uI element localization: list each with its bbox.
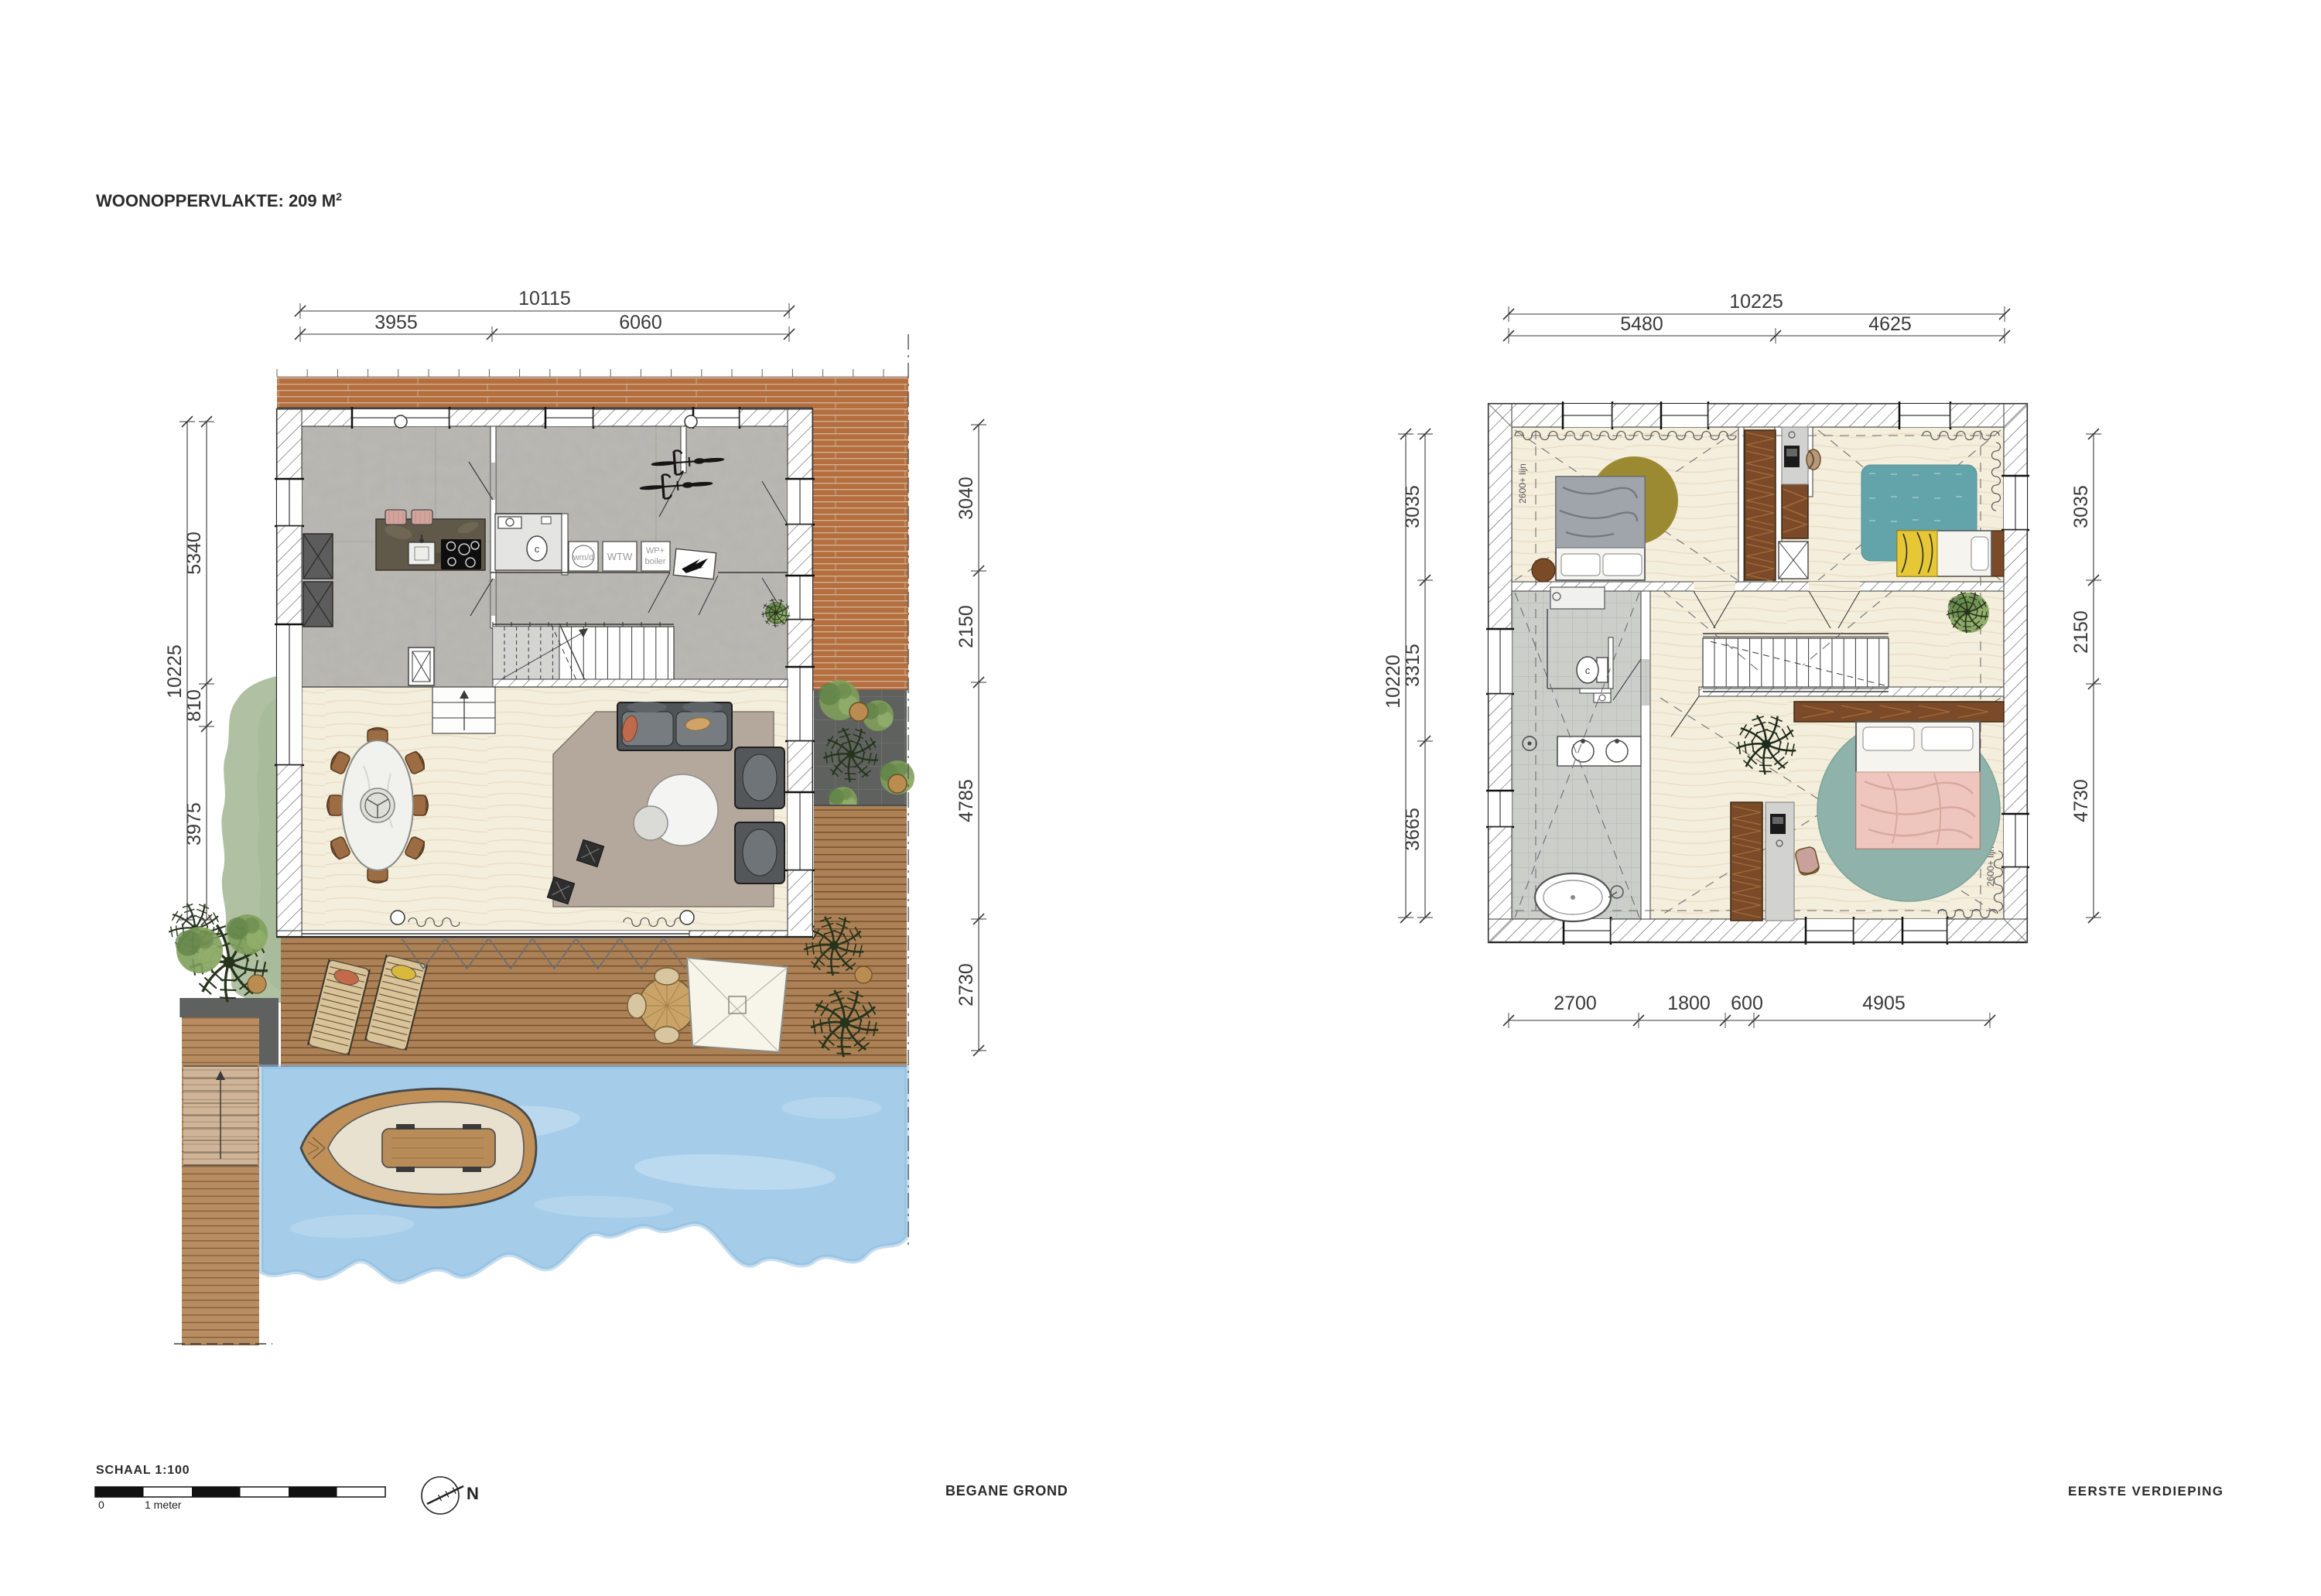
svg-text:BEGANE GROND: BEGANE GROND: [945, 1483, 1068, 1499]
svg-text:10115: 10115: [518, 288, 571, 309]
svg-text:N: N: [467, 1484, 479, 1503]
svg-text:810: 810: [183, 689, 205, 722]
svg-text:2600+ lijn: 2600+ lijn: [1517, 463, 1528, 504]
svg-text:2700: 2700: [1554, 993, 1597, 1014]
svg-text:boiler: boiler: [645, 557, 666, 566]
svg-text:4905: 4905: [1862, 993, 1906, 1014]
svg-text:SCHAAL 1:100: SCHAAL 1:100: [96, 1464, 190, 1477]
svg-text:c: c: [1585, 665, 1591, 676]
svg-text:600: 600: [1731, 993, 1763, 1014]
svg-text:4785: 4785: [955, 779, 977, 822]
svg-text:10220: 10220: [1383, 654, 1404, 709]
svg-text:WP+: WP+: [646, 546, 665, 555]
svg-text:2150: 2150: [955, 605, 977, 648]
svg-text:WOONOPPERVLAKTE: 209 M2: WOONOPPERVLAKTE: 209 M2: [96, 190, 342, 210]
svg-text:3315: 3315: [1402, 644, 1424, 687]
svg-text:4625: 4625: [1868, 313, 1912, 335]
svg-text:3955: 3955: [374, 312, 418, 333]
svg-text:5340: 5340: [183, 531, 205, 575]
svg-text:2150: 2150: [2070, 610, 2092, 654]
svg-text:EERSTE VERDIEPING: EERSTE VERDIEPING: [2068, 1484, 2224, 1499]
svg-text:c: c: [535, 543, 540, 555]
svg-text:3035: 3035: [1402, 485, 1424, 528]
svg-text:1800: 1800: [1667, 993, 1711, 1014]
svg-text:4730: 4730: [2070, 779, 2092, 822]
svg-text:10225: 10225: [1729, 291, 1783, 313]
svg-text:10225: 10225: [164, 644, 186, 699]
svg-text:5480: 5480: [1620, 313, 1663, 335]
svg-text:3040: 3040: [955, 477, 977, 520]
svg-text:1 meter: 1 meter: [145, 1499, 182, 1511]
svg-text:0: 0: [98, 1499, 104, 1511]
svg-text:6060: 6060: [619, 312, 662, 333]
svg-text:3975: 3975: [183, 802, 205, 846]
svg-text:wm/d: wm/d: [573, 553, 593, 562]
svg-text:WTW: WTW: [607, 551, 633, 562]
svg-text:3035: 3035: [2070, 485, 2092, 528]
svg-text:2730: 2730: [955, 963, 977, 1006]
svg-text:3665: 3665: [1402, 808, 1424, 851]
